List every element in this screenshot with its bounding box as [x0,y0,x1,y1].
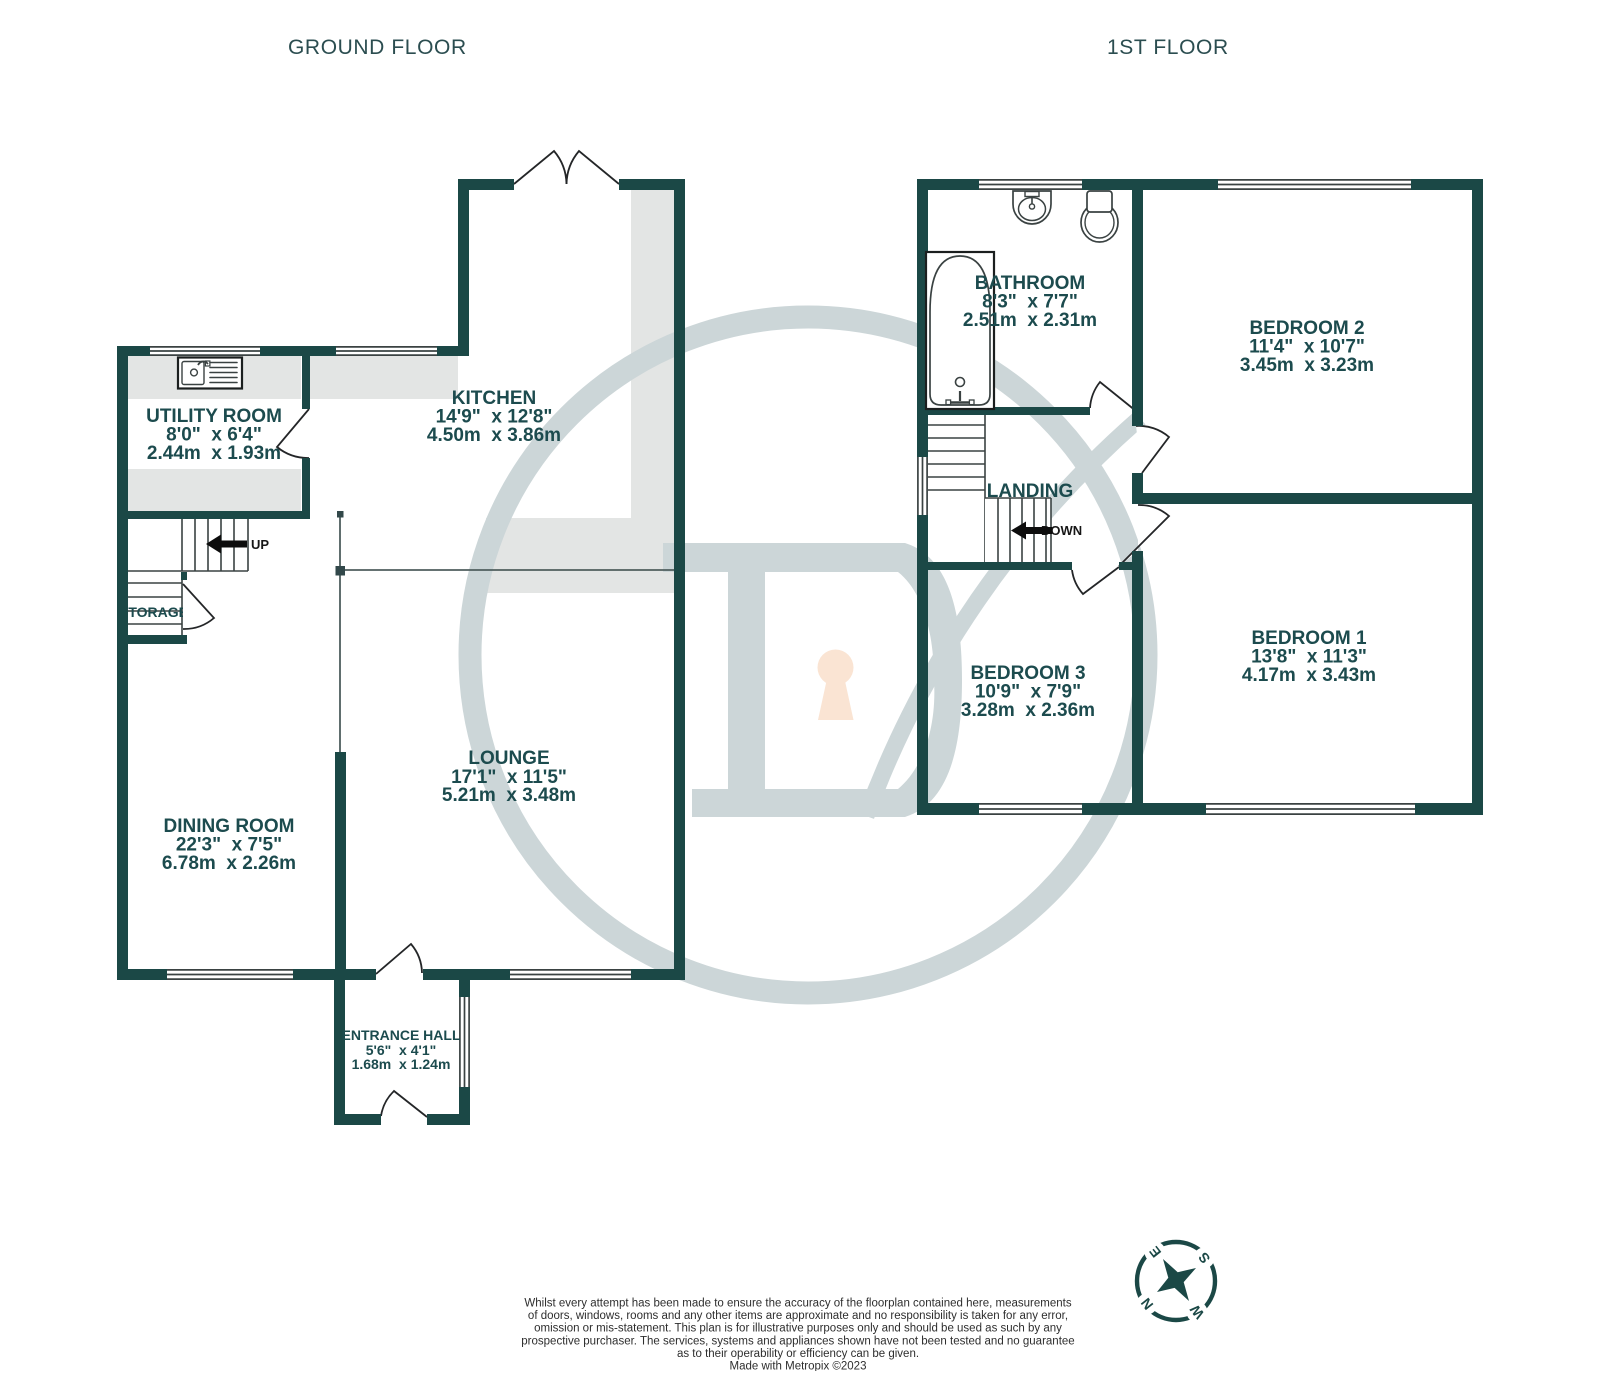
svg-text:4.50m x 3.86m: 4.50m x 3.86m [427,425,561,446]
svg-text:Made with Metropix ©2023: Made with Metropix ©2023 [730,1361,867,1372]
svg-text:2.51m x 2.31m: 2.51m x 2.31m [963,310,1097,331]
svg-text:STORAGE: STORAGE [119,604,188,620]
svg-text:as to their operability or eff: as to their operability or efficiency ca… [677,1348,919,1360]
svg-text:LOUNGE: LOUNGE [468,748,549,769]
svg-text:1.68m x 1.24m: 1.68m x 1.24m [352,1056,451,1072]
svg-text:6.78m x 2.26m: 6.78m x 2.26m [162,853,296,874]
svg-text:omission or mis-statement. Thi: omission or mis-statement. This plan is … [534,1323,1062,1335]
svg-text:1ST FLOOR: 1ST FLOOR [1107,36,1229,59]
svg-text:LANDING: LANDING [987,481,1074,502]
svg-text:UP: UP [251,537,269,552]
svg-text:Whilst every attempt has been: Whilst every attempt has been made to en… [524,1298,1071,1310]
svg-text:2.44m x 1.93m: 2.44m x 1.93m [147,443,281,464]
svg-text:3.28m x 2.36m: 3.28m x 2.36m [961,700,1095,721]
svg-text:5.21m x 3.48m: 5.21m x 3.48m [442,785,576,806]
svg-text:ENTRANCE HALL: ENTRANCE HALL [342,1027,461,1043]
svg-text:of doors, windows, rooms and a: of doors, windows, rooms and any other i… [528,1310,1068,1322]
svg-text:prospective purchaser. The ser: prospective purchaser. The services, sys… [521,1335,1074,1347]
svg-text:3.45m x 3.23m: 3.45m x 3.23m [1240,355,1374,376]
svg-text:4.17m x 3.43m: 4.17m x 3.43m [1242,665,1376,686]
svg-text:GROUND FLOOR: GROUND FLOOR [288,36,467,59]
